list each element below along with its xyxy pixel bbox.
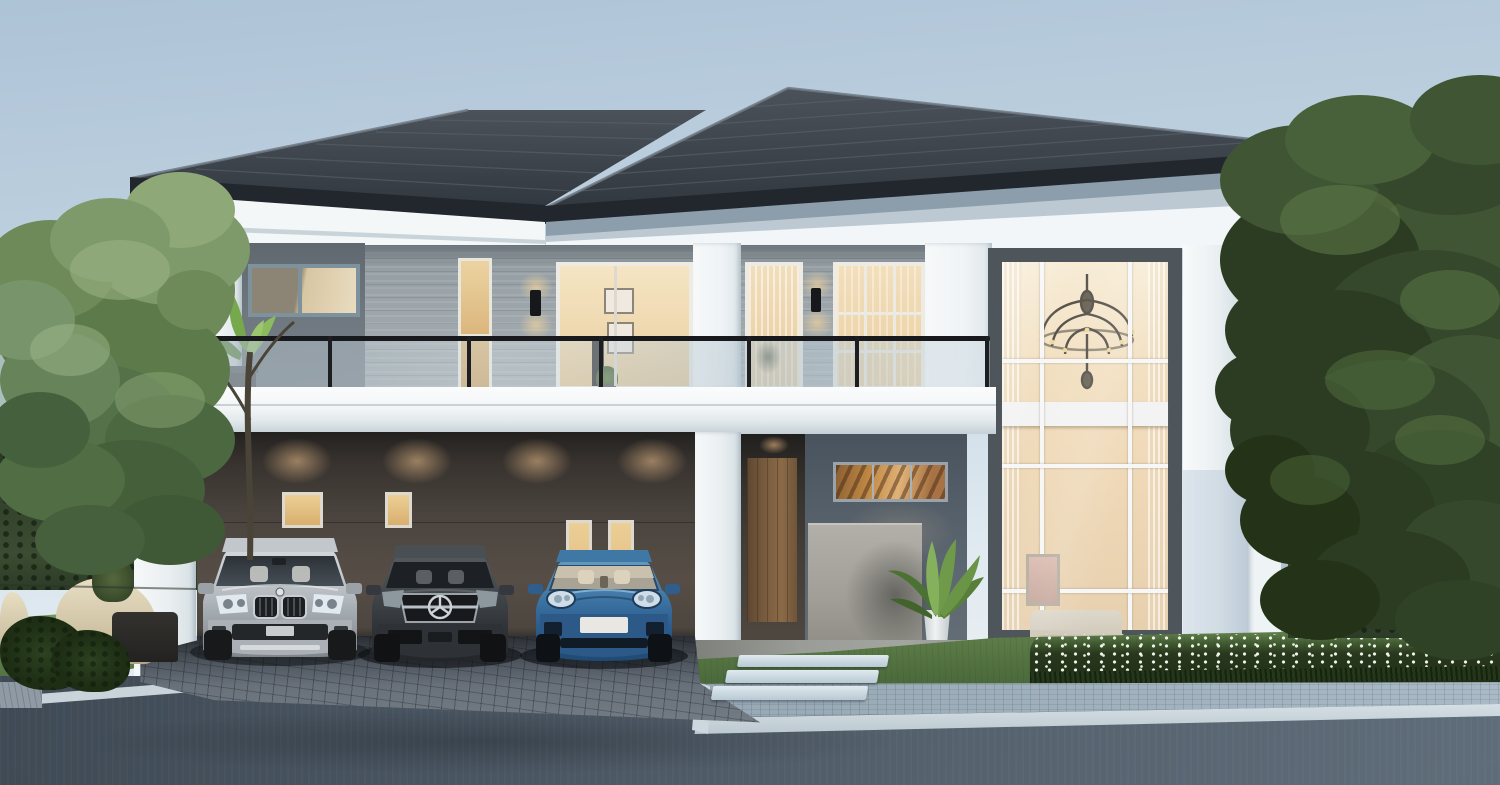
house-render-scene: [0, 0, 1500, 785]
right-tree: [1215, 75, 1500, 660]
car-mercedes-sedan: [358, 545, 522, 668]
car-bmw-suv: [190, 538, 370, 666]
foreground-layer: [0, 0, 1500, 785]
left-tree: [0, 172, 294, 575]
garden-fence-line: [0, 585, 196, 589]
car-porsche-sedan: [520, 550, 688, 669]
